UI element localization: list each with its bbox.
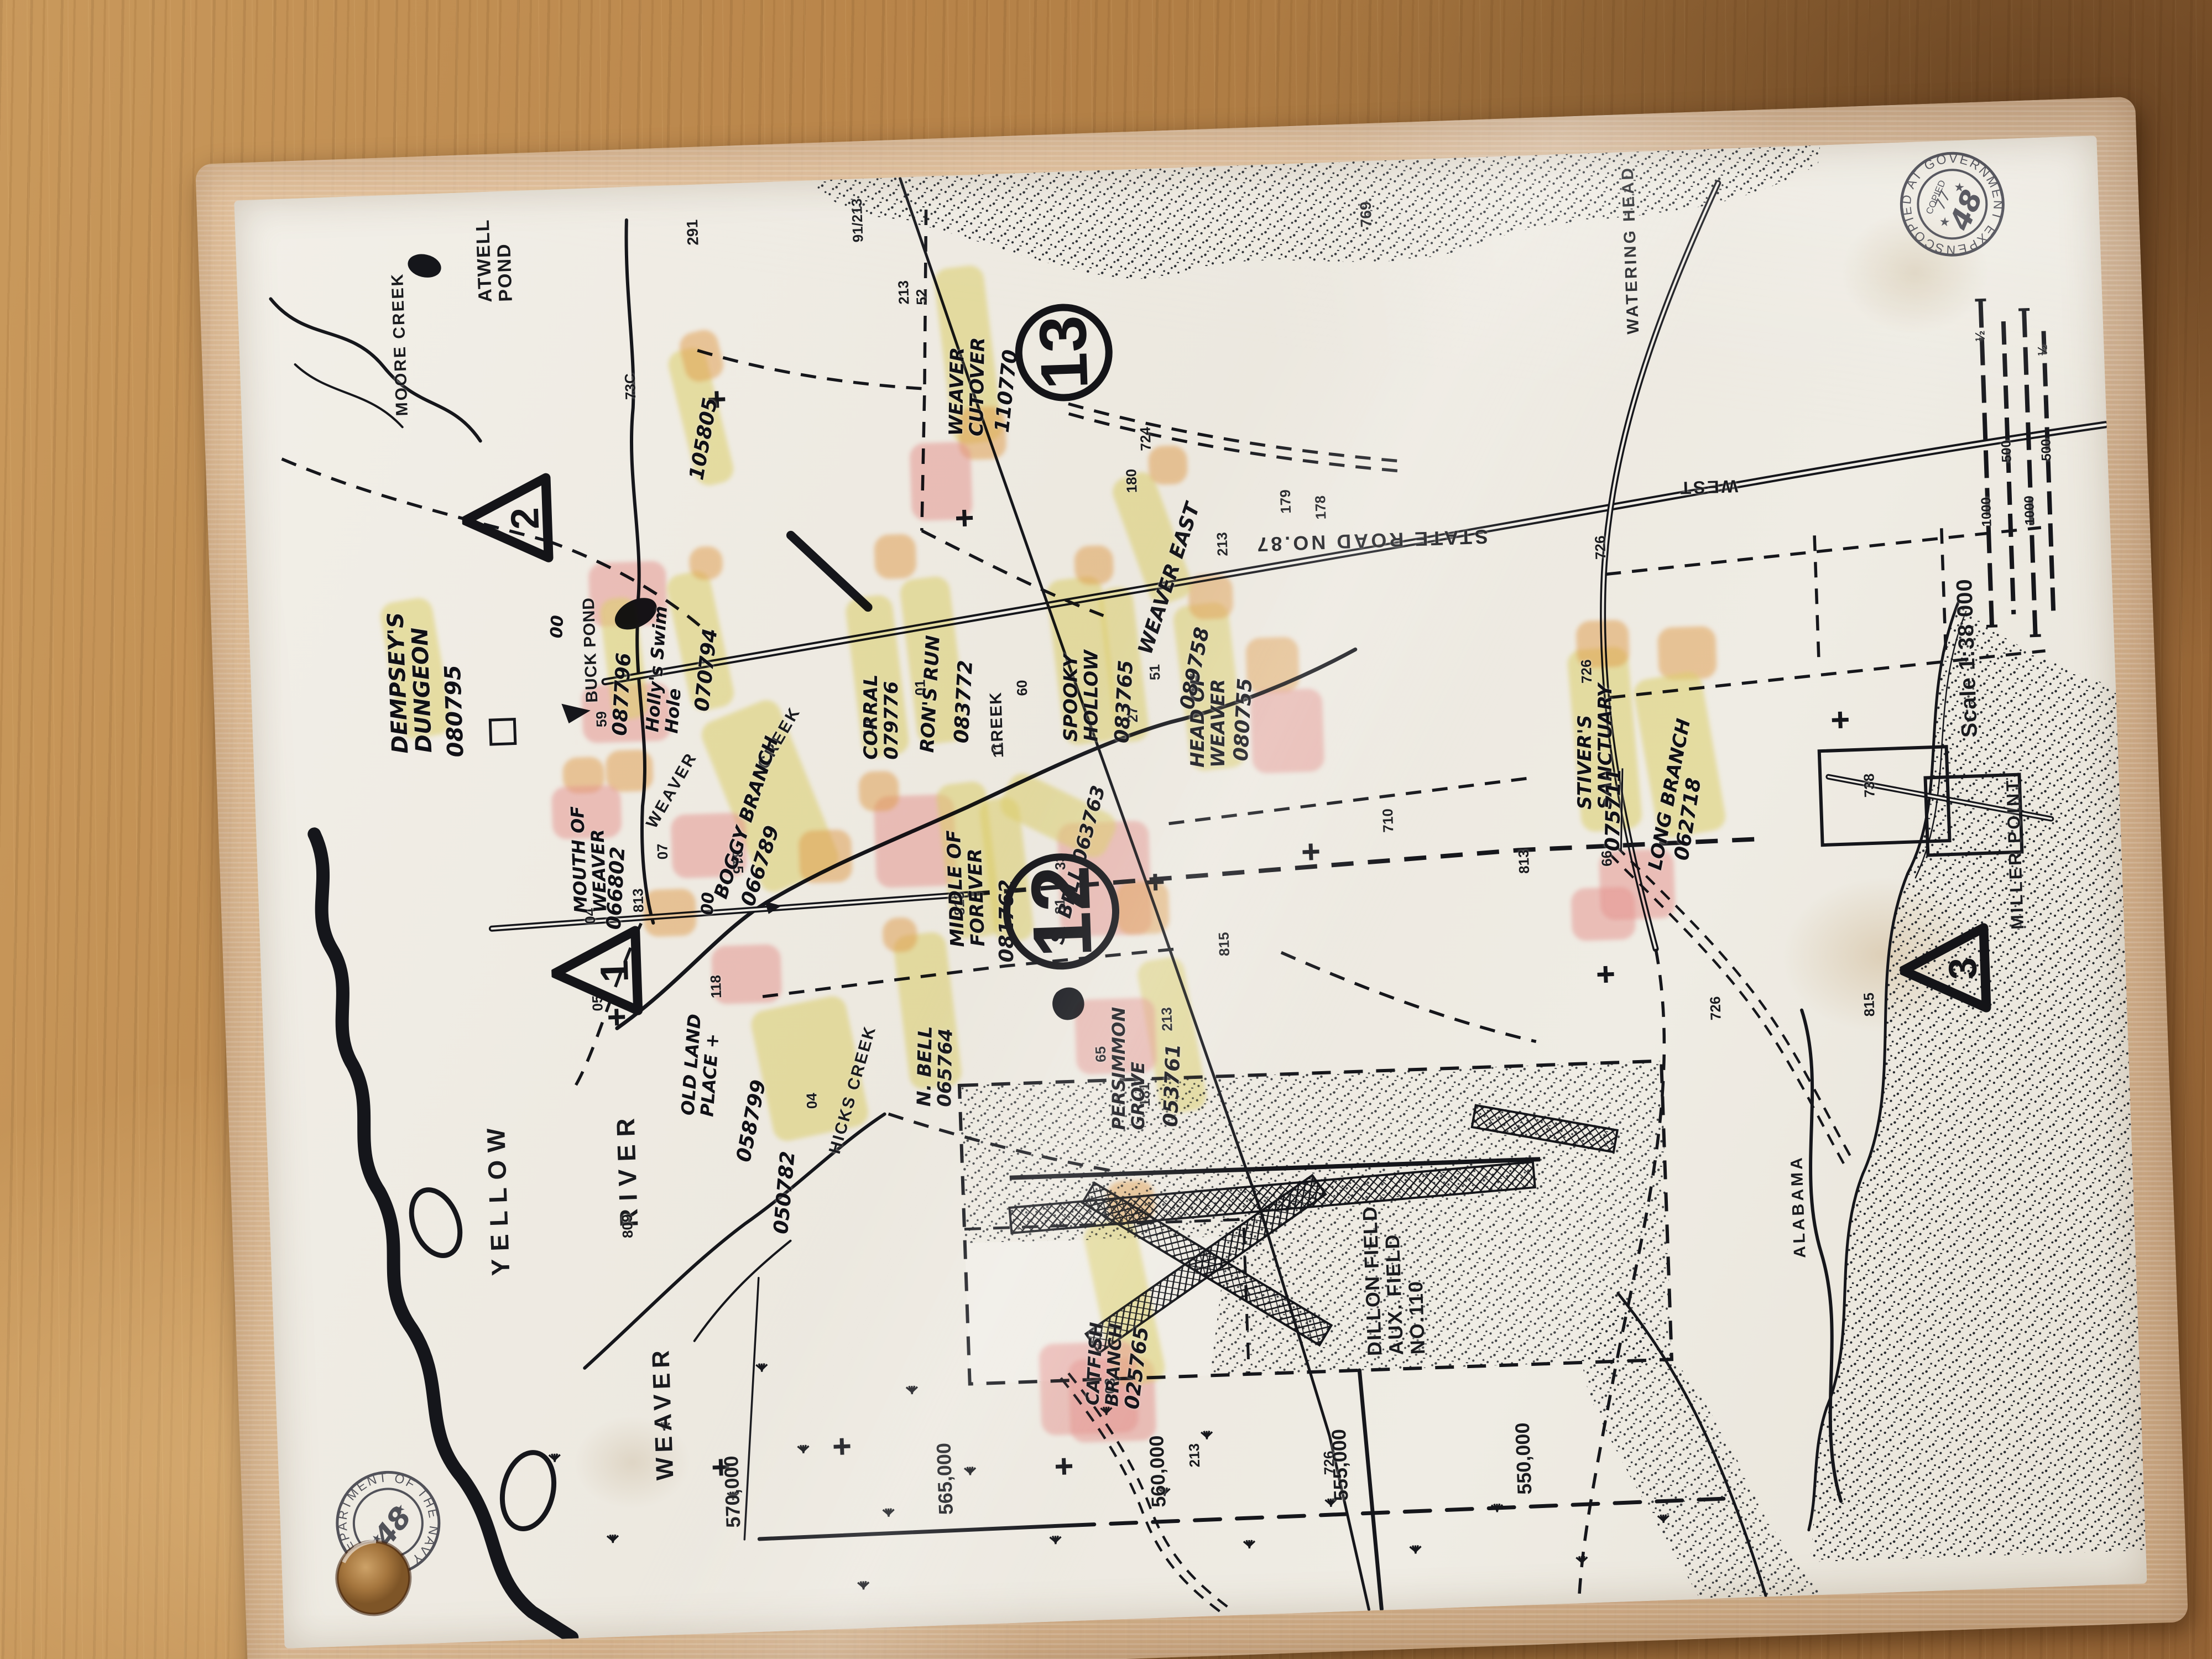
printed-label: HICKS CREEK (826, 1024, 880, 1156)
handwritten-label: N. BELL 065764 (914, 1026, 956, 1107)
printed-label: 813 (1516, 849, 1532, 874)
laminated-map-sheet: COPIED AT GOVERNMENT EXPENSE COPIED ★ ★ … (195, 97, 2188, 1659)
printed-label: 813 (630, 888, 646, 912)
handwritten-label: 087796 (609, 652, 635, 736)
label-layer: ATWELL PONDMOORE CREEKBUCK PONDWEAVERCRE… (234, 135, 2147, 1648)
printed-label: 66 (1599, 850, 1615, 867)
printed-label: ½ (2036, 345, 2051, 356)
printed-label: ATWELL POND (473, 218, 517, 303)
printed-label: STATE ROAD NO.87 (1254, 525, 1489, 555)
printed-label: 710 (1380, 808, 1396, 833)
handwritten-label: 025765 (1121, 1326, 1153, 1411)
grid-coordinate: 570,000 (721, 1455, 744, 1528)
handwritten-label: MOUTH OF WEAVER (568, 805, 610, 914)
handwritten-label: WEAVER CUTOVER (946, 337, 989, 436)
handwritten-label: 00 (699, 891, 718, 915)
printed-label: 769 (1358, 201, 1375, 228)
printed-label: 118 (708, 975, 724, 999)
printed-label: ALABAMA (1788, 1155, 1809, 1259)
printed-label: DILLON FIELD AUX. FIELD NO.110 (1359, 1204, 1429, 1357)
printed-label: 213 (1186, 1443, 1203, 1468)
printed-label: ½ (1973, 330, 1988, 342)
printed-label: 04 (804, 1093, 820, 1109)
handwritten-label: 080755 (1231, 677, 1257, 761)
handwritten-label: DEMPSEY'S DUNGEON (384, 611, 436, 754)
handwritten-label: PERSIMMON GROVE (1109, 1007, 1147, 1130)
circled-area-number: 13 (1014, 302, 1114, 403)
printed-label: 11 (990, 742, 1006, 758)
printed-label: WEAVER (643, 749, 701, 832)
triangle-station-marker: 3 (1898, 915, 2007, 1024)
triangle-number-text: 1 (592, 959, 637, 983)
printed-label: 60 (1014, 680, 1030, 696)
printed-label: 815 (1861, 993, 1877, 1017)
printed-label: 213 (1214, 532, 1230, 556)
printed-label: YELLOW (482, 1120, 515, 1276)
printed-label: 52 (914, 289, 930, 305)
printed-label: WEST (1678, 477, 1739, 498)
handwritten-label: 083772 (951, 660, 977, 744)
printed-label: Scale 1:38 000 (1953, 578, 1982, 738)
handwritten-label: 00 (548, 615, 567, 639)
printed-label: BUCK POND (580, 597, 602, 703)
printed-label: MOORE CREEK (389, 272, 411, 416)
printed-label: 291 (684, 220, 702, 246)
printed-label: 07 (654, 843, 670, 860)
handwritten-label: 070794 (692, 628, 722, 713)
printed-label: 500 (1999, 440, 2014, 463)
printed-label: 51 (1147, 664, 1163, 681)
printed-label: 726 (1592, 535, 1609, 560)
printed-label: WATERING HEAD (1619, 165, 1643, 335)
printed-label: WEAVER (648, 1345, 679, 1480)
printed-label: 59 (593, 711, 609, 728)
printed-label: 178 (1312, 495, 1329, 520)
handwritten-label: 080795 (441, 665, 468, 758)
printed-label: 1000 (2022, 495, 2038, 525)
grid-coordinate: 560,000 (1146, 1435, 1170, 1507)
printed-label: 726 (1578, 659, 1595, 684)
grid-coordinate: 565,000 (933, 1442, 957, 1515)
handwritten-label: 066802 (604, 846, 630, 930)
handwritten-label: 083765 (1112, 660, 1138, 744)
handwritten-label: OLD LAND PLACE + (678, 1013, 723, 1117)
handwritten-label: 058799 (733, 1078, 770, 1164)
handwritten-label: RON'S RUN (917, 635, 944, 753)
triangle-number-text: 3 (1940, 957, 1985, 980)
printed-label: 73C (622, 373, 639, 400)
grid-coordinate: 555,000 (1328, 1428, 1352, 1501)
triangle-station-marker: 1 (550, 917, 659, 1026)
handwritten-label: CORRAL 079776 (861, 675, 901, 760)
printed-label: 726 (1707, 996, 1724, 1020)
photo-of-map-on-table: COPIED AT GOVERNMENT EXPENSE COPIED ★ ★ … (0, 0, 2212, 1659)
handwritten-label: SPOOKY HOLLOW (1061, 650, 1101, 742)
printed-label: RIVER (612, 1110, 643, 1228)
triangle-station-marker: 2 (460, 465, 569, 573)
printed-label: 65 (1093, 1046, 1109, 1063)
handwritten-label: 050782 (771, 1150, 800, 1235)
printed-label: 1000 (1979, 497, 1995, 527)
printed-label: 738 (1861, 773, 1877, 797)
circled-area-number: 12 (1001, 852, 1121, 972)
grid-coordinate: 550,000 (1512, 1422, 1536, 1495)
printed-label: MILLER POINT (2003, 778, 2027, 930)
printed-label: 809 (619, 1214, 636, 1238)
printed-label: 179 (1277, 489, 1294, 514)
printed-label: 213 (895, 280, 912, 305)
handwritten-label: 075711 (1603, 768, 1625, 852)
handwritten-label: MIDDLE OF FOREVER (944, 829, 989, 947)
handwritten-label: CATFISH BRANCH (1083, 1322, 1125, 1407)
printed-label: 213 (1159, 1007, 1175, 1031)
circled-number-text: 12 (1012, 864, 1111, 959)
printed-label: 500 (2039, 439, 2054, 461)
circled-number-text: 13 (1024, 314, 1103, 390)
printed-label: 815 (1216, 932, 1233, 956)
handwritten-label: 105805 (686, 396, 722, 482)
handwritten-label: 053761 (1161, 1044, 1185, 1128)
printed-label: 180 (1123, 468, 1140, 493)
triangle-number-text: 2 (503, 507, 547, 530)
printed-label: 724 (1138, 427, 1154, 451)
map-paper: COPIED AT GOVERNMENT EXPENSE COPIED ★ ★ … (234, 135, 2147, 1648)
printed-label: 91/213 (849, 198, 866, 242)
handwritten-label: Holly's Swim Hole (643, 606, 690, 734)
